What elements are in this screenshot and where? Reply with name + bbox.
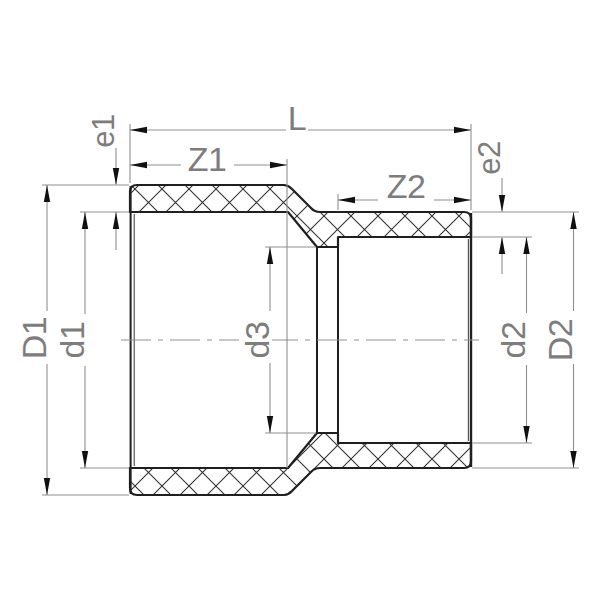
dim-label-L: L [288,99,306,137]
dimension-labels: L Z1 Z2 e1 e2 D1 d1 d3 d2 D2 [15,99,579,361]
drawing-canvas: L Z1 Z2 e1 e2 D1 d1 d3 d2 D2 [0,0,600,600]
reducer-coupling-section-drawing: L Z1 Z2 e1 e2 D1 d1 d3 d2 D2 [0,0,600,600]
dim-label-d3: d3 [238,322,276,359]
dim-label-e2: e2 [472,141,507,174]
dim-label-e1: e1 [86,114,121,147]
part-wall-bottom [130,433,471,495]
dim-label-d1: d1 [53,322,91,359]
dim-label-D1: D1 [15,317,53,359]
dim-label-Z2: Z2 [387,167,426,205]
dim-label-d2: d2 [494,322,532,359]
dim-label-D2: D2 [541,319,579,361]
dim-label-Z1: Z1 [188,140,227,178]
